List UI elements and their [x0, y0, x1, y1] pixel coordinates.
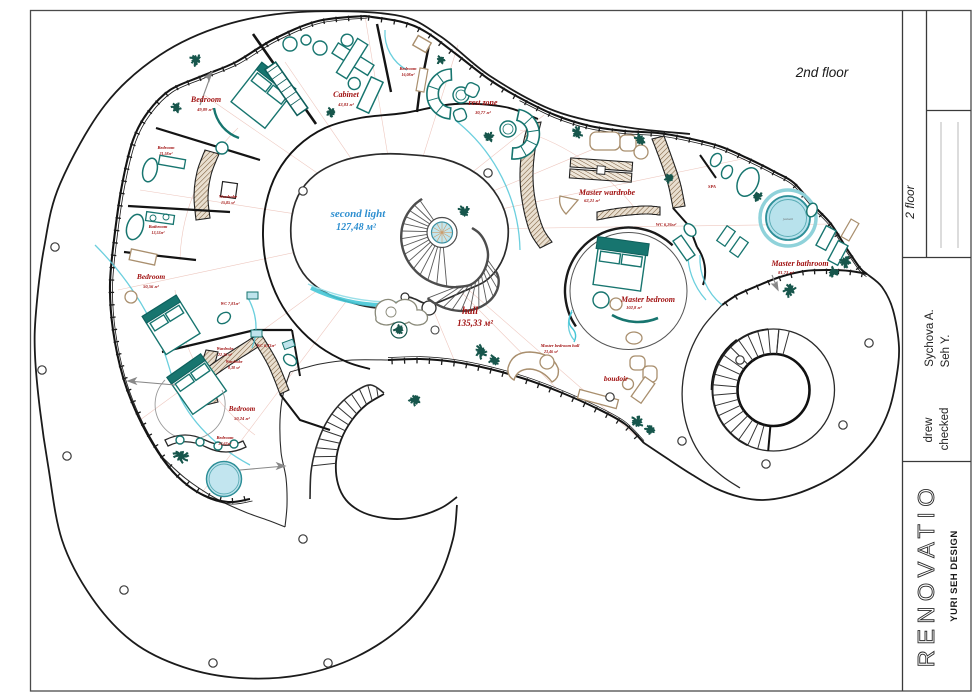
- svg-text:hall: hall: [462, 306, 478, 317]
- svg-text:drew: drew: [923, 417, 935, 443]
- svg-text:49,89 м²: 49,89 м²: [196, 107, 213, 112]
- svg-text:jacuzzi: jacuzzi: [782, 217, 793, 221]
- svg-text:22,36 м²: 22,36 м²: [217, 352, 233, 357]
- svg-text:16,08м²: 16,08м²: [402, 72, 416, 77]
- svg-text:Bedroom: Bedroom: [398, 66, 417, 71]
- svg-text:23,46 м²: 23,46 м²: [543, 349, 559, 354]
- svg-text:81,73 м²: 81,73 м²: [778, 270, 794, 275]
- svg-text:50,56 м²: 50,56 м²: [143, 284, 159, 289]
- svg-text:102,8 м²: 102,8 м²: [626, 305, 642, 310]
- svg-text:WC 7,81м²: WC 7,81м²: [220, 301, 240, 306]
- svg-text:21,58м²: 21,58м²: [159, 151, 174, 156]
- svg-text:Wardrobe: Wardrobe: [217, 346, 234, 351]
- svg-text:Sychova A.: Sychova A.: [924, 309, 936, 367]
- svg-text:Bedroom: Bedroom: [228, 405, 256, 413]
- svg-text:Wardrobe: Wardrobe: [226, 359, 243, 364]
- svg-text:15,85 м²: 15,85 м²: [221, 200, 236, 205]
- svg-text:Bedroom: Bedroom: [190, 95, 221, 104]
- svg-text:rest zone: rest zone: [468, 98, 498, 107]
- svg-text:127,48 м²: 127,48 м²: [336, 222, 377, 233]
- svg-text:WC 6,43м²: WC 6,43м²: [256, 343, 276, 348]
- svg-text:Bathroom: Bathroom: [148, 224, 168, 229]
- svg-text:2 floor: 2 floor: [903, 184, 917, 219]
- svg-text:Master wardrobe: Master wardrobe: [578, 188, 636, 197]
- svg-text:Wardrobe: Wardrobe: [219, 194, 237, 199]
- svg-text:Bedroom: Bedroom: [136, 272, 166, 281]
- svg-text:YURI SEH DESIGN: YURI SEH DESIGN: [949, 530, 960, 621]
- svg-text:boudoir: boudoir: [604, 374, 628, 383]
- svg-text:13,53м²: 13,53м²: [152, 230, 166, 235]
- svg-text:Bedroom: Bedroom: [156, 145, 175, 150]
- svg-text:second light: second light: [330, 208, 387, 220]
- svg-text:2nd floor: 2nd floor: [795, 65, 849, 80]
- svg-text:WC 6,26м²: WC 6,26м²: [656, 222, 677, 227]
- svg-text:43,83 м²: 43,83 м²: [337, 102, 354, 107]
- svg-text:Cabinet: Cabinet: [333, 90, 360, 99]
- svg-text:checked: checked: [939, 408, 951, 451]
- svg-text:Master bedroom: Master bedroom: [620, 295, 675, 304]
- svg-text:135,33 м²: 135,33 м²: [457, 318, 493, 328]
- svg-text:30,77 м²: 30,77 м²: [474, 110, 491, 115]
- svg-text:Master bathroom: Master bathroom: [770, 259, 828, 268]
- svg-text:Seh Y.: Seh Y.: [940, 335, 952, 368]
- svg-text:50,24 м²: 50,24 м²: [234, 416, 250, 421]
- svg-text:RENOVATIO: RENOVATIO: [913, 483, 939, 667]
- svg-text:SPA: SPA: [708, 184, 716, 189]
- svg-text:8,38 м²: 8,38 м²: [228, 365, 241, 370]
- svg-text:Master bedroom hall: Master bedroom hall: [540, 343, 581, 348]
- svg-text:34,62м²: 34,62м²: [218, 441, 233, 446]
- svg-text:Bedroom: Bedroom: [215, 435, 234, 440]
- svg-text:62,21 м²: 62,21 м²: [584, 198, 600, 203]
